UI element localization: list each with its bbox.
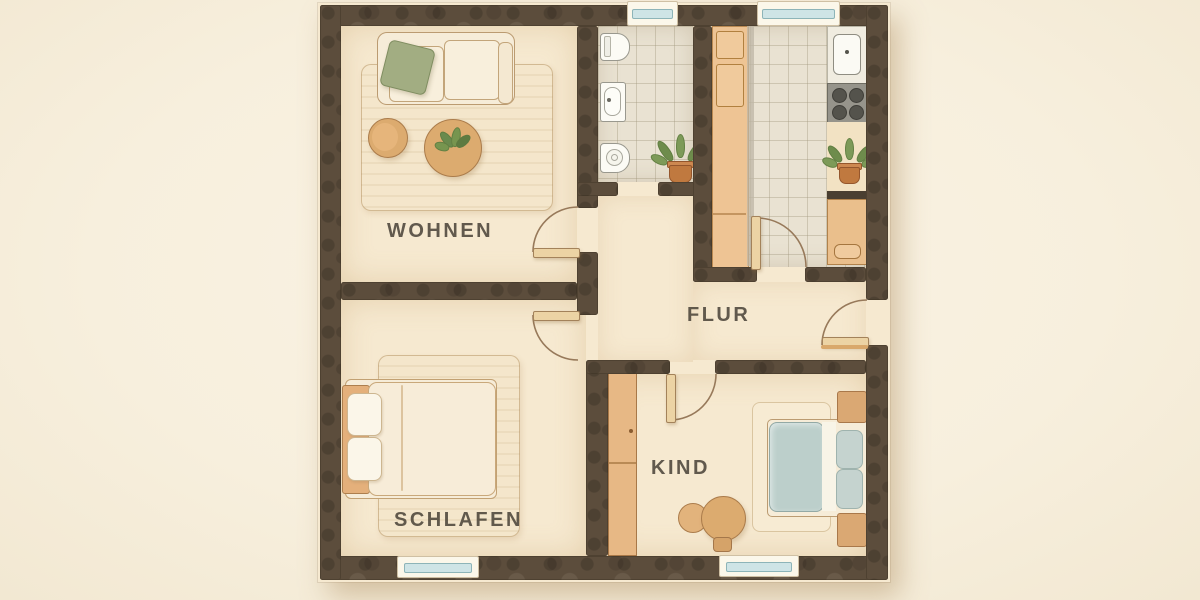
- kitchen-counter-run: [712, 26, 749, 268]
- kind-play-table: [701, 496, 746, 541]
- entrance-threshold: [821, 345, 868, 349]
- wall-kitchen-bottom-left: [693, 267, 757, 282]
- wall-outer-left: [320, 5, 341, 580]
- kitchen-plant-pot: [839, 167, 860, 184]
- window-schlafen-glass: [404, 563, 472, 573]
- window-bathroom-glass: [632, 9, 673, 19]
- kind-wardrobe-divider: [609, 462, 636, 464]
- coffee-table-large: [424, 119, 482, 177]
- wall-outer-right-upper: [866, 5, 888, 300]
- kitchen-sink-basin: [833, 34, 861, 75]
- kitchen-sink-unit: [827, 26, 868, 85]
- wall-outer-right-lower: [866, 345, 888, 580]
- room-label-flur: FLUR: [687, 304, 750, 327]
- kitchen-base-cabinet: [827, 199, 868, 265]
- window-kitchen: [757, 1, 840, 26]
- wall-kind-top-left: [586, 360, 670, 374]
- wall-center-junction: [577, 252, 598, 315]
- kitchen-cabinet-upper-1: [716, 31, 744, 59]
- stove: [827, 83, 868, 124]
- door-leaf-kind: [666, 374, 676, 423]
- kitchen-shelf: [827, 191, 866, 199]
- window-bathroom: [627, 1, 678, 26]
- wall-kitchen-bottom-right: [805, 267, 866, 282]
- kind-nightstand-top: [837, 391, 867, 423]
- wall-kind-top-right: [715, 360, 866, 374]
- floor-flur-upper: [598, 196, 693, 362]
- kind-wardrobe: [608, 373, 637, 556]
- bidet: [600, 143, 630, 173]
- bathroom-plant-pot: [669, 165, 692, 183]
- kitchen-base-cabinet-drawer: [834, 244, 861, 259]
- wall-wohnen-schlafen: [341, 282, 577, 300]
- toilet: [600, 33, 630, 61]
- window-kind: [719, 555, 799, 577]
- wall-bath-kitchen: [693, 26, 712, 282]
- bed-duvet-fold: [401, 385, 403, 491]
- coffee-table-small: [368, 118, 408, 158]
- bidet-drain-swirl: [606, 149, 623, 166]
- washbasin-faucet: [607, 98, 611, 102]
- window-kitchen-glass: [762, 9, 835, 19]
- bed-pillow-1: [347, 393, 382, 436]
- floorplan-page: WOHNEN SCHLAFEN FLUR KIND: [0, 0, 1200, 600]
- washbasin: [600, 82, 626, 122]
- kind-bed-pillow-1: [836, 430, 863, 469]
- kind-nightstand-bottom: [837, 513, 867, 547]
- kitchen-sink-drain: [845, 50, 849, 54]
- kitchen-counter-divider: [713, 213, 746, 215]
- washbasin-bowl: [604, 87, 621, 116]
- sofa-armrest: [498, 42, 513, 104]
- toilet-tank: [604, 36, 611, 57]
- stove-burner: [832, 88, 847, 103]
- kind-bed-duvet: [769, 422, 824, 512]
- room-label-schlafen: SCHLAFEN: [394, 509, 523, 532]
- stove-burner: [832, 105, 847, 120]
- wall-bath-bottom-left: [577, 182, 618, 196]
- kind-wardrobe-knob: [629, 429, 633, 433]
- stove-burner: [849, 105, 864, 120]
- floor-entrance-threshold: [866, 300, 890, 345]
- kind-bed-pillow-2: [836, 469, 863, 509]
- coffee-table-small-top: [372, 123, 398, 151]
- room-label-kind: KIND: [651, 457, 710, 480]
- door-leaf-wohnen: [533, 248, 580, 258]
- stove-burner: [849, 88, 864, 103]
- kind-bed-sheet-strip: [822, 422, 836, 511]
- room-label-wohnen: WOHNEN: [387, 220, 493, 243]
- wall-wohnen-right-upper: [577, 26, 598, 208]
- bed-duvet: [368, 382, 496, 496]
- window-kind-glass: [726, 562, 792, 572]
- kitchen-cabinet-upper-2: [716, 64, 744, 107]
- sofa-cushion-right: [444, 40, 500, 100]
- door-leaf-schlafen: [533, 311, 580, 321]
- kind-chair-back: [713, 537, 732, 552]
- window-schlafen: [397, 556, 479, 578]
- bed-pillow-2: [347, 437, 382, 481]
- door-leaf-kitchen: [751, 216, 761, 270]
- wall-schlafen-kind: [586, 362, 608, 556]
